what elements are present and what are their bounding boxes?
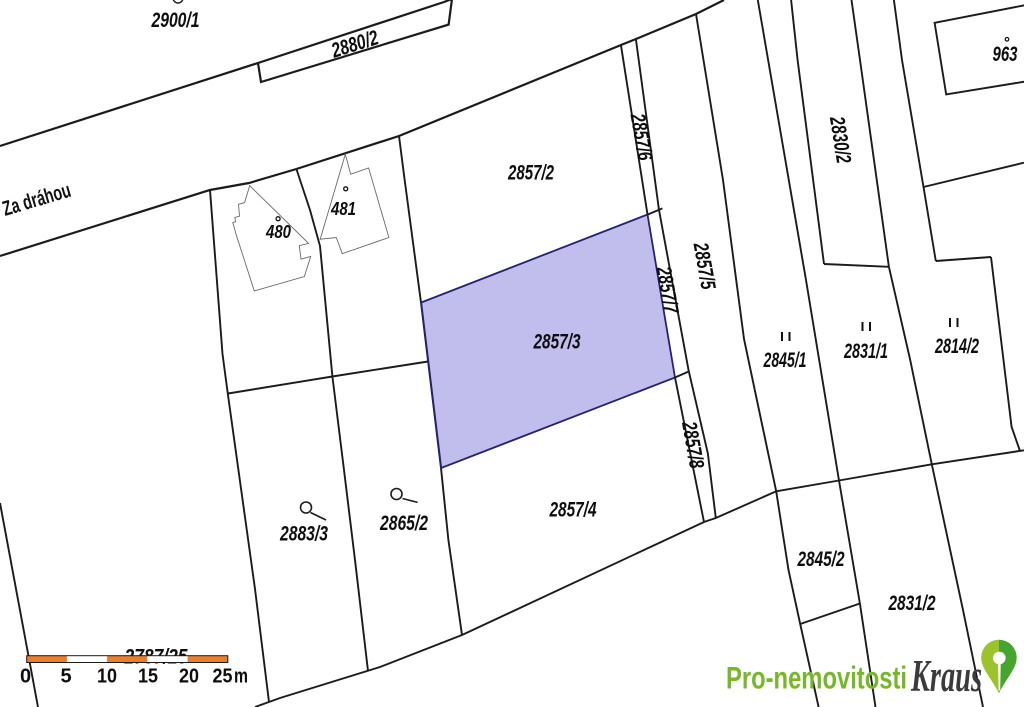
svg-text:2814/2: 2814/2 [934,335,979,358]
svg-text:2831/2: 2831/2 [888,592,936,615]
svg-text:2857/2: 2857/2 [507,162,554,185]
svg-text:963: 963 [993,43,1018,66]
svg-text:10: 10 [97,666,117,688]
svg-text:0: 0 [20,666,31,688]
svg-text:2900/1: 2900/1 [151,9,200,32]
svg-text:2845/1: 2845/1 [763,349,807,372]
svg-text:2831/1: 2831/1 [843,340,888,363]
svg-text:480: 480 [265,222,291,242]
svg-text:15: 15 [138,666,158,688]
svg-text:20: 20 [179,666,199,688]
svg-text:2857/3: 2857/3 [533,331,581,354]
svg-text:2845/2: 2845/2 [797,548,845,571]
svg-text:2865/2: 2865/2 [379,512,428,535]
svg-text:Kraus: Kraus [910,651,982,701]
svg-text:5: 5 [60,666,71,688]
svg-text:Pro-nemovitosti: Pro-nemovitosti [726,660,907,696]
svg-text:m: m [234,666,248,688]
svg-text:2883/3: 2883/3 [279,523,328,546]
svg-text:25: 25 [213,666,233,688]
svg-text:481: 481 [330,199,356,219]
svg-text:2857/4: 2857/4 [549,499,597,522]
